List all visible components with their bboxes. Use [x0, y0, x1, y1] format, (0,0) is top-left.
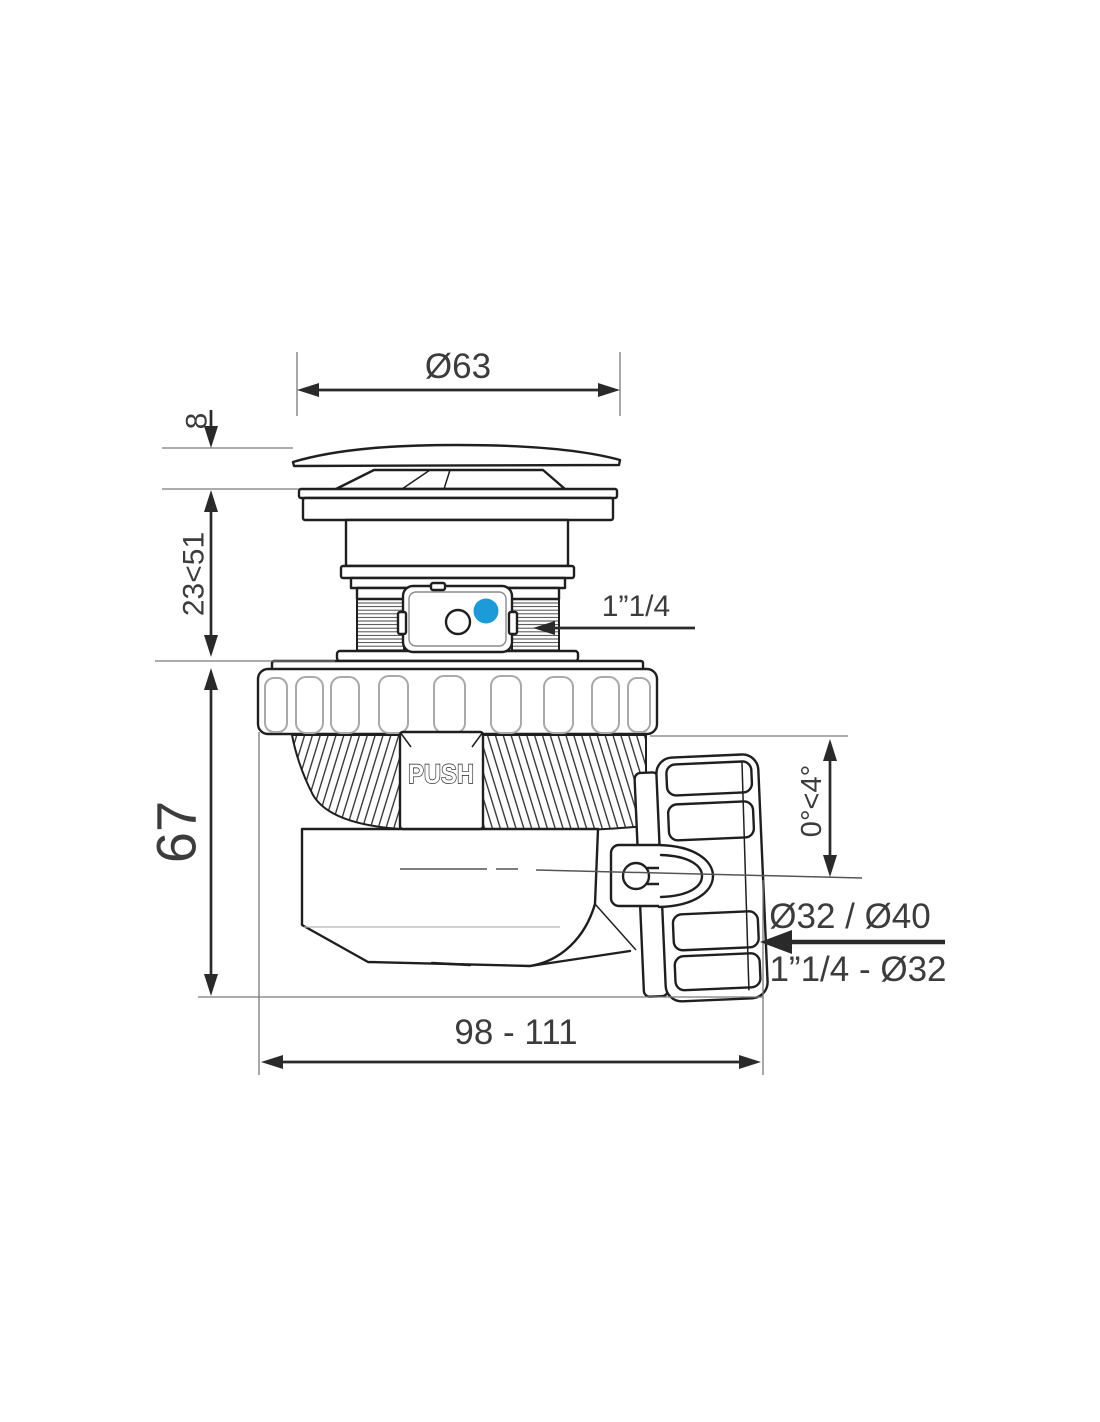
inlet-thread-label: 1”1/4: [602, 590, 670, 623]
plate-tab-top: [431, 583, 445, 590]
body-upper: [346, 520, 568, 566]
locknut-plate: [398, 583, 517, 652]
flange-band: [303, 498, 613, 520]
body-height-label: 67: [145, 801, 208, 863]
cap-underside: [336, 470, 565, 489]
overall-length-label: 98 - 111: [454, 1013, 577, 1052]
body-band: [341, 566, 574, 578]
keyhole-circle: [623, 863, 649, 889]
technical-drawing-page: PUSH Ø63: [0, 0, 1100, 1422]
wall-bracket: [611, 845, 667, 906]
tilt-angle-label: 0°<4°: [796, 765, 828, 837]
cap-thickness-label: 8: [181, 413, 214, 430]
cup-outline: [302, 829, 598, 966]
flange-lip: [299, 489, 617, 498]
blue-indicator-dot: [474, 599, 499, 624]
annot-outlet: Ø32 / Ø40 1”1/4 - Ø32: [760, 897, 947, 989]
push-tab: PUSH: [400, 732, 483, 829]
plate-tab-right: [509, 612, 517, 634]
outlet-reduction-label: 1”1/4 - Ø32: [769, 950, 946, 989]
drain-hole-marker: [446, 610, 470, 634]
collar-nut: [258, 669, 657, 734]
push-label: PUSH: [408, 759, 474, 789]
outlet-diameters-label: Ø32 / Ø40: [769, 897, 930, 936]
plate-tab-left: [398, 612, 406, 634]
adjustable-height-label: 23<51: [178, 532, 211, 616]
swirl-right: [483, 735, 646, 831]
drain-trap-diagram: PUSH Ø63: [0, 0, 1100, 1422]
cap-diameter-label: Ø63: [425, 347, 491, 386]
